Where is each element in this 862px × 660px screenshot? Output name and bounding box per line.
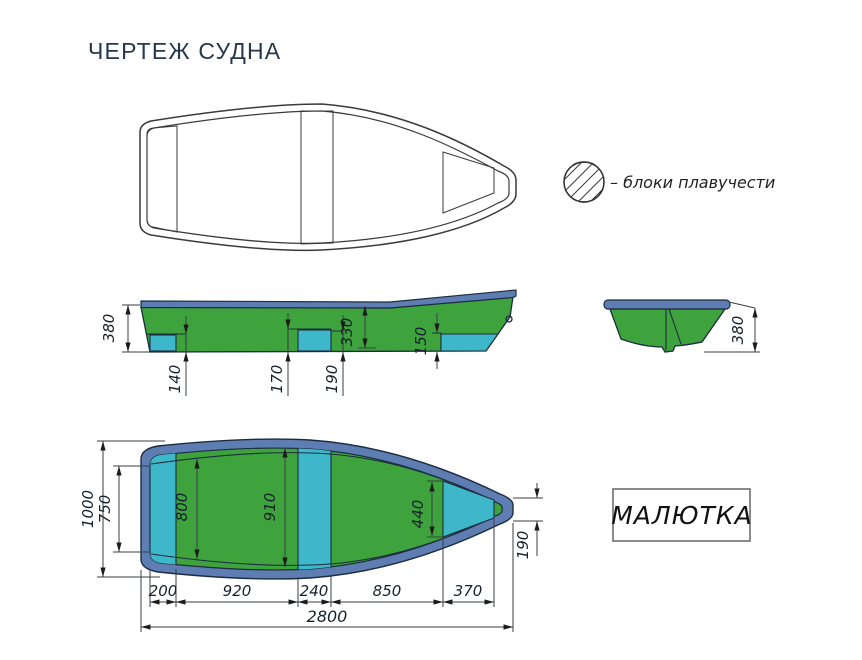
plan-view: 1000 750 800 910 440 190 xyxy=(79,439,543,632)
dim-transom-height: 380 xyxy=(729,316,747,345)
dim-chain-200: 200 xyxy=(149,582,178,600)
boat-drawing: – блоки плавучести 380 140 xyxy=(0,0,862,660)
dim-beam-overall: 1000 xyxy=(79,490,97,528)
legend-label: – блоки плавучести xyxy=(610,173,775,192)
top-view xyxy=(140,104,516,250)
dim-beam-stern-inner: 750 xyxy=(96,495,114,524)
dim-mid-shelf: 170 xyxy=(268,365,286,394)
dim-chain-850: 850 xyxy=(373,582,402,600)
dim-stern-shelf: 140 xyxy=(166,365,184,394)
model-box: МАЛЮТКА xyxy=(611,489,753,541)
buoyancy-block-bow xyxy=(443,152,494,213)
model-name: МАЛЮТКА xyxy=(611,501,753,530)
legend: – блоки плавучести xyxy=(564,162,775,202)
dim-chain-370: 370 xyxy=(454,582,483,600)
side-bow-block-cyan xyxy=(441,334,498,351)
dim-chain-920: 920 xyxy=(223,582,252,600)
transom-view: 380 xyxy=(604,300,760,352)
side-mid-block-cyan xyxy=(298,330,331,351)
dim-bow-tip-width: 190 xyxy=(514,531,532,560)
dim-bow-block-width: 440 xyxy=(409,500,427,529)
buoyancy-block-mid xyxy=(301,111,333,244)
dim-chain-240: 240 xyxy=(300,582,329,600)
top-view-outer-hull xyxy=(140,104,516,250)
dim-side-height: 380 xyxy=(100,314,118,343)
legend-hatched-circle-fill xyxy=(564,162,604,202)
drawing-page: ЧЕРТЕЖ СУДНА – блоки плавучести xyxy=(0,0,862,660)
dim-bow-shelf: 150 xyxy=(412,327,430,356)
dim-mid-step: 190 xyxy=(323,365,341,394)
transom-body-green xyxy=(610,309,725,352)
side-view: 380 140 170 190 330 150 xyxy=(100,290,516,396)
top-view-inner-gunwale xyxy=(147,111,509,243)
dim-inner-depth: 330 xyxy=(338,318,356,347)
plan-mid-block-cyan xyxy=(298,442,331,574)
transom-gunwale-blue xyxy=(604,300,730,309)
dim-floor-width-stern: 800 xyxy=(173,493,191,522)
dim-floor-width-mid: 910 xyxy=(261,493,279,522)
buoyancy-block-stern xyxy=(147,126,177,232)
dim-length-overall: 2800 xyxy=(307,607,348,626)
side-stern-block-cyan xyxy=(150,335,176,351)
